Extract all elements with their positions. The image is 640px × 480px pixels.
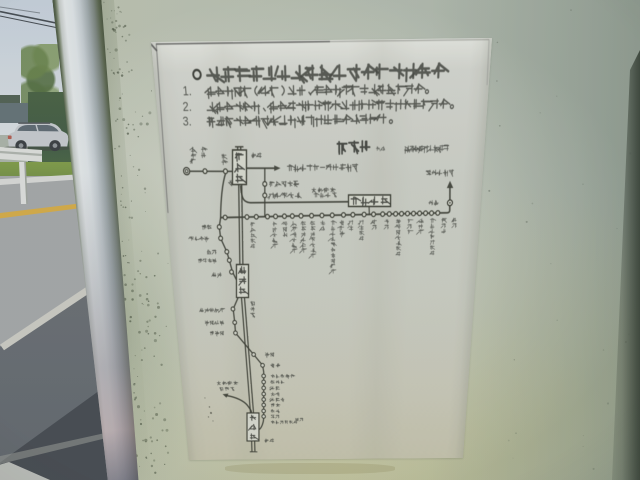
svg-text:1.: 1. bbox=[182, 84, 192, 99]
svg-text:3.: 3. bbox=[182, 114, 192, 128]
svg-text:2.: 2. bbox=[182, 100, 192, 114]
